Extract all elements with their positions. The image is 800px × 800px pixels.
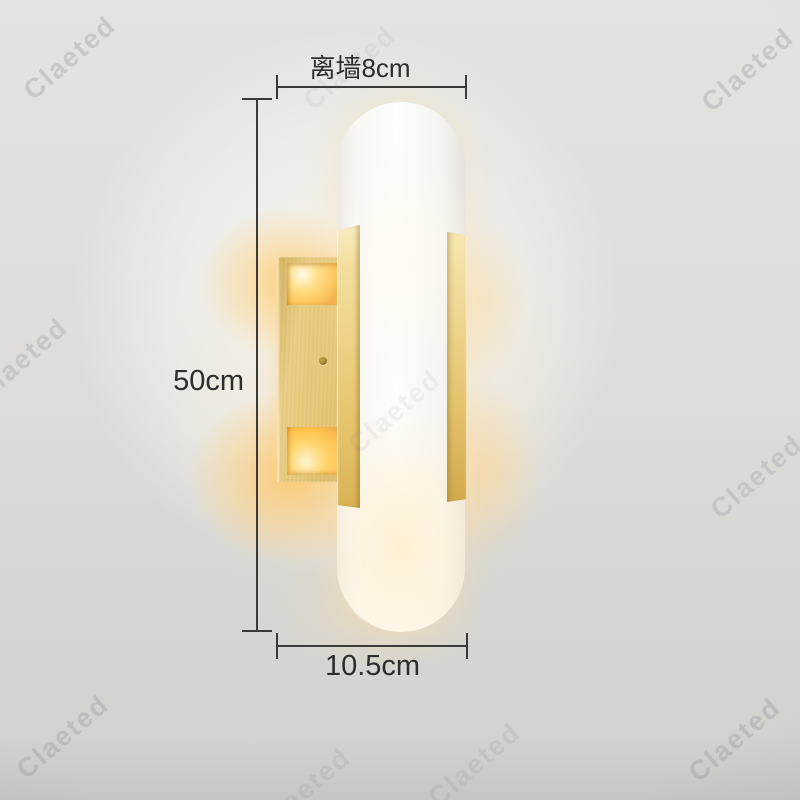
wall-distance-tick-right — [465, 75, 467, 99]
width-dimension-line — [277, 645, 468, 647]
backplate-screw — [319, 357, 327, 365]
product-image: Claeted Claeted Claeted Claeted Claeted … — [0, 0, 800, 800]
wall-distance-label: 离墙8cm — [265, 48, 455, 85]
backplate-top-light-window — [287, 263, 342, 305]
height-dimension-line — [256, 99, 258, 632]
height-tick-top — [242, 98, 272, 100]
lamp-backplate — [277, 257, 342, 482]
lamp-gold-bar-right — [447, 232, 467, 502]
wall-distance-dimension-line — [277, 86, 467, 88]
lamp-gold-bar-left — [337, 225, 360, 508]
height-label: 50cm — [140, 365, 244, 398]
height-tick-bottom — [242, 630, 272, 632]
backplate-bottom-light-window — [287, 427, 342, 475]
width-label: 10.5cm — [277, 650, 468, 683]
